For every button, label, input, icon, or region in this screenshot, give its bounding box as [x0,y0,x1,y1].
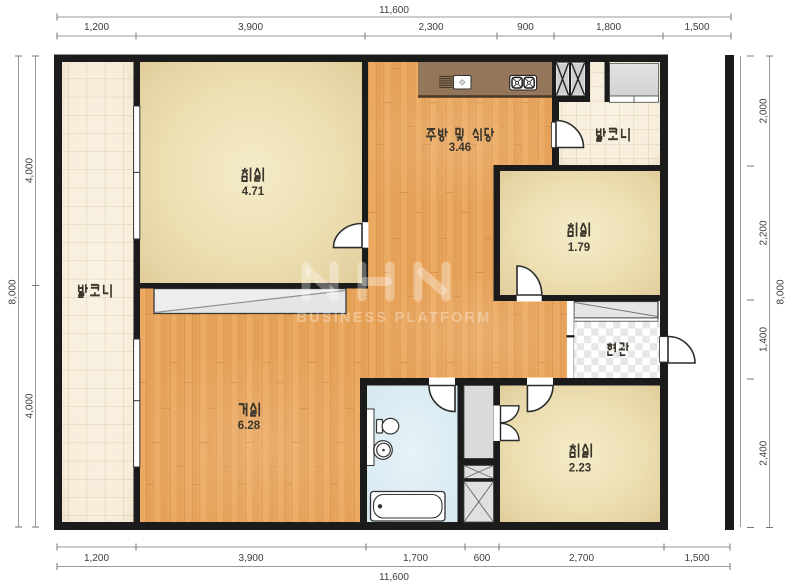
svg-text:8,000: 8,000 [776,279,787,304]
svg-text:1.79: 1.79 [568,242,590,254]
svg-text:1,500: 1,500 [684,553,709,564]
svg-text:2,200: 2,200 [759,220,770,245]
svg-text:2.23: 2.23 [569,462,591,474]
svg-text:3,900: 3,900 [238,22,263,33]
svg-text:1,200: 1,200 [84,553,109,564]
svg-text:4,000: 4,000 [25,158,36,183]
svg-text:2,300: 2,300 [418,22,443,33]
svg-text:1,700: 1,700 [403,553,428,564]
svg-text:3,900: 3,900 [238,553,263,564]
svg-text:900: 900 [517,22,534,33]
svg-text:BUSINESS PLATFORM: BUSINESS PLATFORM [296,310,491,326]
svg-text:2,400: 2,400 [759,440,770,465]
svg-text:600: 600 [474,553,491,564]
svg-text:11,600: 11,600 [379,572,409,583]
svg-text:3.46: 3.46 [449,142,471,154]
svg-text:1,400: 1,400 [759,327,770,352]
svg-text:8,000: 8,000 [8,279,19,304]
svg-text:1,200: 1,200 [84,22,109,33]
svg-text:2,700: 2,700 [569,553,594,564]
svg-text:4.71: 4.71 [242,186,265,198]
svg-text:2,000: 2,000 [759,98,770,123]
svg-text:11,600: 11,600 [379,5,409,16]
svg-text:4,000: 4,000 [25,393,36,418]
svg-text:1,500: 1,500 [684,22,709,33]
svg-text:1,800: 1,800 [596,22,621,33]
svg-text:6.28: 6.28 [238,420,261,432]
